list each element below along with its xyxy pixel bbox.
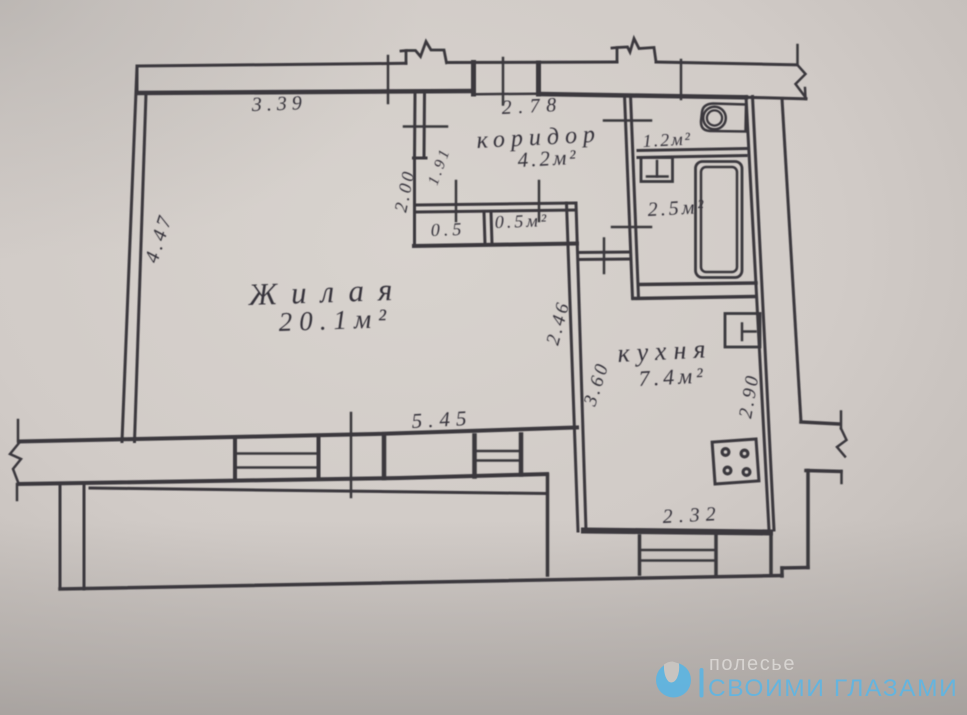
svg-text:1.2м²: 1.2м² bbox=[642, 128, 692, 151]
svg-text:7.4м²: 7.4м² bbox=[638, 362, 707, 391]
svg-text:2.78: 2.78 bbox=[501, 94, 563, 119]
svg-text:2.5м²: 2.5м² bbox=[647, 196, 707, 221]
svg-text:5.45: 5.45 bbox=[411, 406, 473, 433]
svg-text:4.2м²: 4.2м² bbox=[517, 145, 579, 172]
svg-text:СВОИМИ ГЛАЗАМИ: СВОИМИ ГЛАЗАМИ bbox=[708, 675, 958, 702]
svg-text:2.32: 2.32 bbox=[662, 503, 722, 528]
svg-text:полесье: полесье bbox=[709, 653, 796, 675]
svg-text:0.5м²: 0.5м² bbox=[494, 210, 549, 232]
svg-text:3.39: 3.39 bbox=[250, 92, 307, 116]
svg-text:20.1м²: 20.1м² bbox=[278, 303, 394, 337]
svg-text:0.5: 0.5 bbox=[430, 219, 465, 240]
